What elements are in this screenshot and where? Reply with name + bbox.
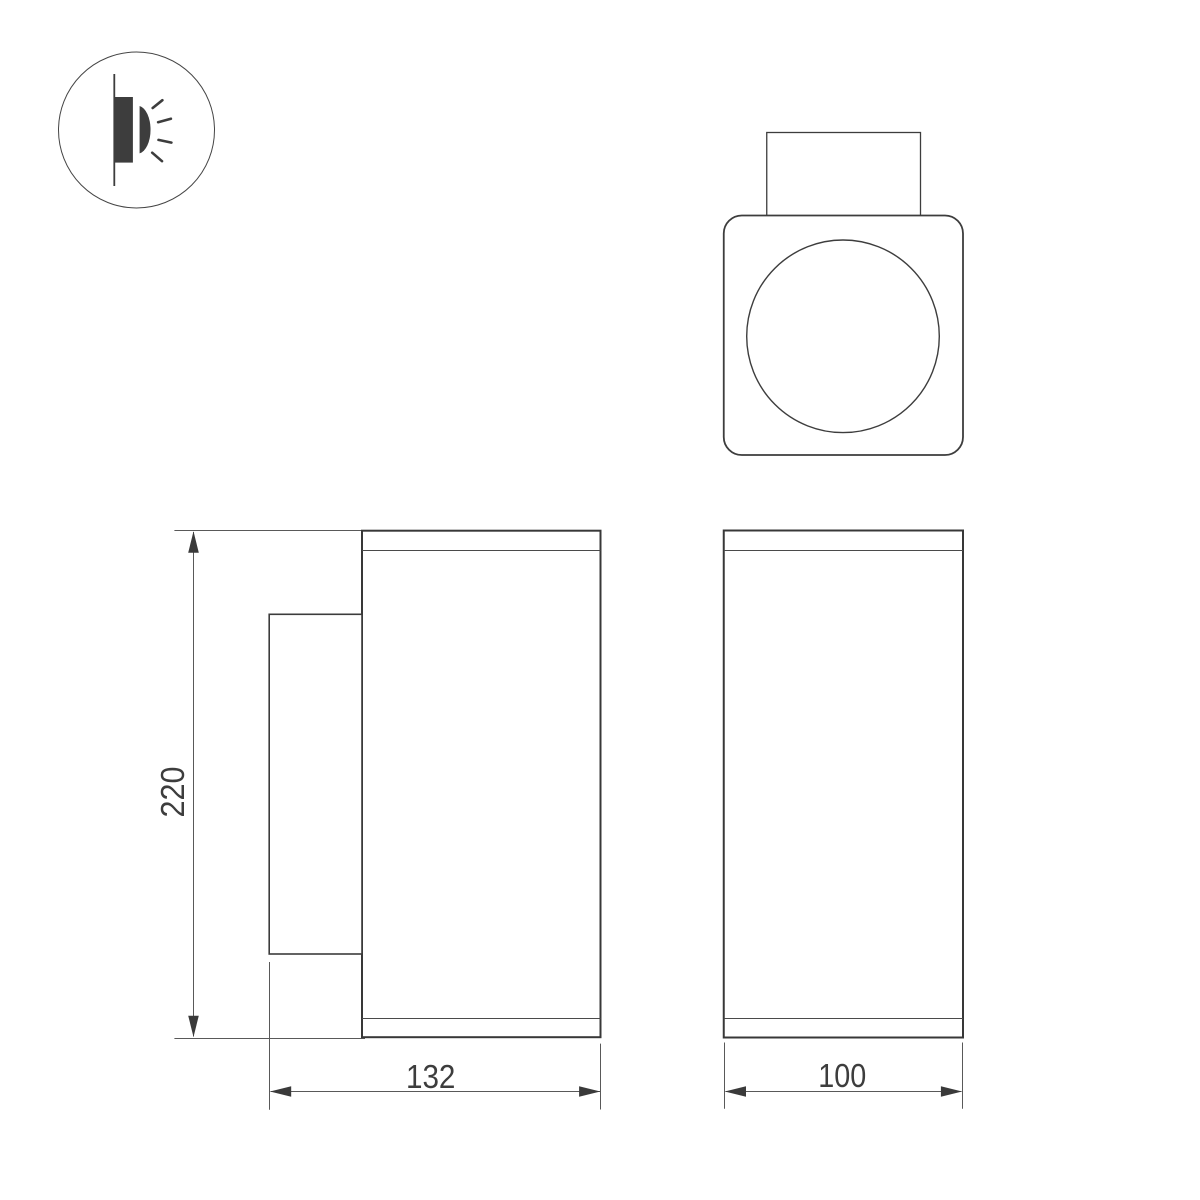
svg-text:220: 220 xyxy=(154,767,191,818)
svg-text:100: 100 xyxy=(818,1057,866,1094)
svg-text:132: 132 xyxy=(406,1058,456,1095)
